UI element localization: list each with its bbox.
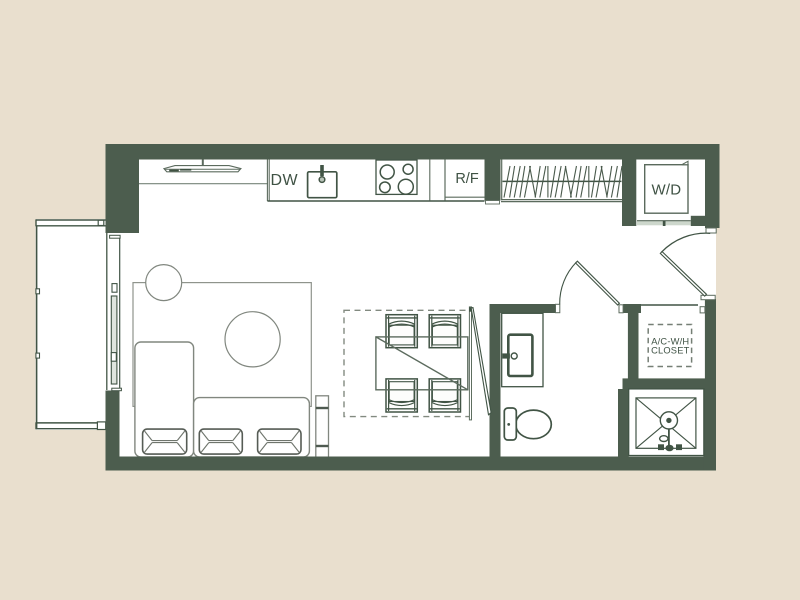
svg-text:R/F: R/F <box>455 171 479 187</box>
svg-text:W/D: W/D <box>652 182 682 199</box>
svg-text:CLOSET: CLOSET <box>651 346 690 356</box>
svg-text:DW: DW <box>270 172 298 189</box>
